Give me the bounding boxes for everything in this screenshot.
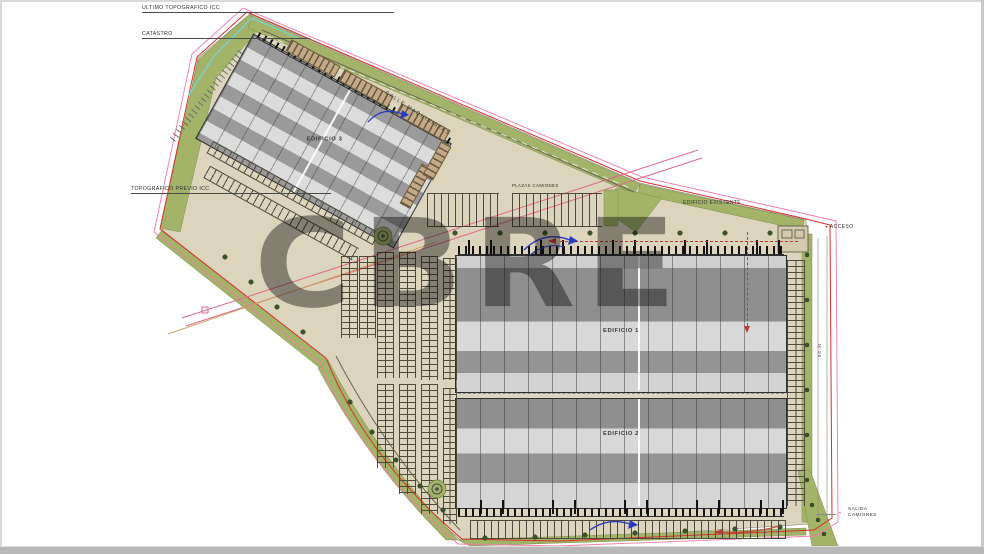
acceso-arrow-icon: ◄ <box>824 224 828 229</box>
salida-marker-icon: ▪ <box>839 510 841 515</box>
label-salida-camiones: SALIDA CAMIONES <box>848 507 880 519</box>
site-plan-canvas: EDIFICIO 3 EDIFICIO 1 EDIFICIO 2 <box>0 0 984 554</box>
frame-left <box>0 0 2 554</box>
label-topografico-previo: TOPOGRAFICO PREVIO ICC <box>131 186 331 194</box>
label-plazas-camiones: PLAZAS CAMIONES <box>512 183 559 188</box>
frame-bottom <box>0 546 984 554</box>
label-road-m50: M-50 <box>817 344 822 358</box>
label-catastro: CATASTRO <box>142 31 310 39</box>
frame-top <box>0 0 984 2</box>
cbre-watermark: CBRE <box>254 204 686 326</box>
label-acceso: ◄ ACCESO <box>824 224 853 230</box>
salida-leader-line <box>816 514 836 515</box>
label-ultimo-topografico: ULTIMO TOPOGRAFICO ICC <box>142 5 394 13</box>
acceso-text: ACCESO <box>830 224 854 230</box>
label-edificio-existente: EDIFICIO EXISTENTE <box>683 200 741 206</box>
